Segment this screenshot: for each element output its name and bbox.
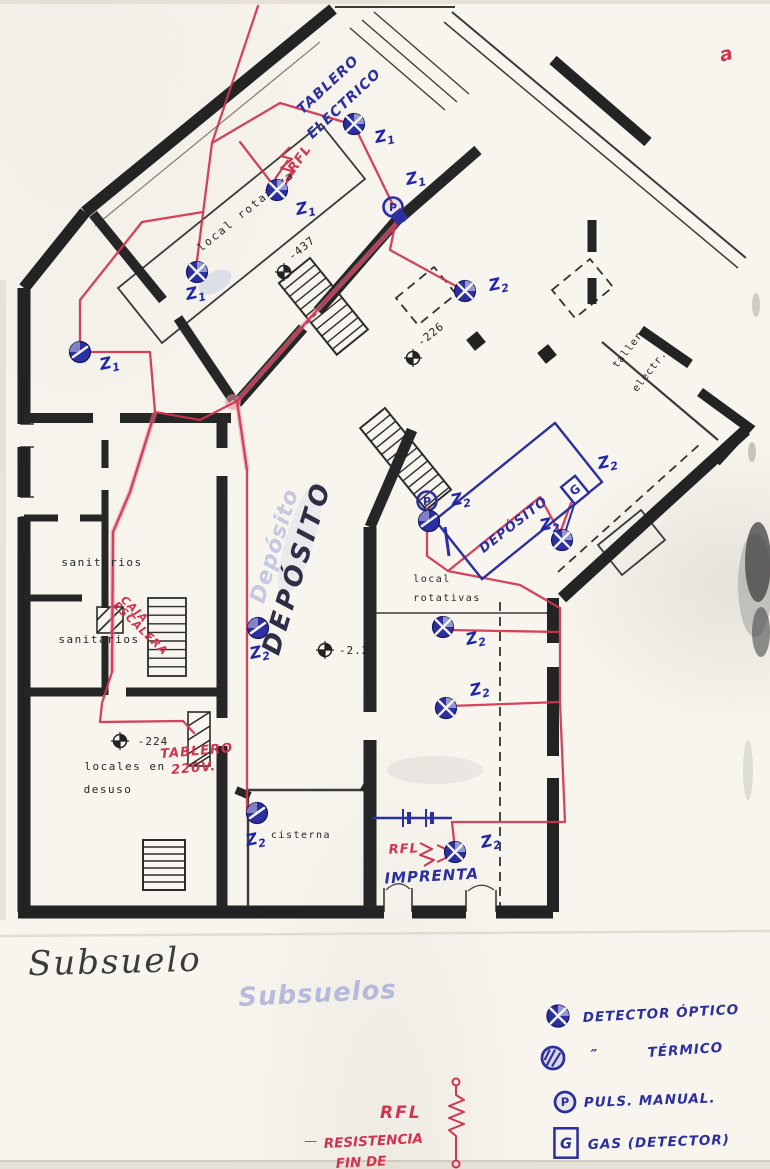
legend-detector-termico-ditto: ″: [591, 1046, 598, 1064]
zone-label: Z2: [478, 829, 503, 855]
note-subsuelos: Subsuelos: [238, 975, 398, 1013]
zone-label: Z1: [293, 196, 317, 222]
legend-rfl-label: RFL: [380, 1103, 422, 1123]
room-sanitarios-1: sanitarios: [61, 556, 142, 569]
detector-markers: Z1Z1PZ1Z1Z1Z2PZ2GZ2Z2Z2Z2Z2Z2Z2: [70, 114, 620, 863]
blue-linework: [372, 208, 602, 827]
optical-symbol: [455, 281, 476, 302]
level-221-text: -2.21: [339, 644, 377, 657]
wiring-red: [80, 6, 571, 850]
level-224: [111, 732, 129, 750]
room-local: local: [413, 574, 451, 585]
level-226: [404, 349, 422, 367]
pulsador-symbol: P: [555, 1092, 575, 1112]
legend-rfl-note1: RESISTENCIA: [323, 1131, 423, 1152]
zone-label: Z2: [595, 450, 620, 476]
note-imprenta: IMPRENTA: [384, 865, 479, 888]
thermal-symbol: [419, 511, 440, 532]
optical-symbol: [445, 842, 466, 863]
room-cisterna: cisterna: [271, 830, 331, 841]
floor-plan-canvas: local rotativatallerelectr.sanitariossan…: [0, 0, 770, 1169]
room-rotativas: rotativas: [413, 593, 481, 604]
room-sanitarios-2: sanitarios: [58, 633, 139, 646]
optical-symbol: [187, 262, 208, 283]
room-locales-en: locales en: [84, 760, 165, 773]
stair-flight: [360, 408, 451, 510]
legend-gas-detector-text: GAS (DETECTOR): [588, 1132, 731, 1153]
thermal-symbol: [247, 803, 268, 824]
note-tablero-220-2: 220V.: [171, 759, 217, 778]
level-226-text: -226: [415, 320, 447, 349]
legend-rfl-note2: FIN DE: [335, 1153, 387, 1169]
plan-title-pencil: Subsuelo: [28, 940, 203, 985]
pulsador-symbol: P: [418, 492, 437, 511]
zone-label: Z2: [486, 272, 511, 298]
stair-flight: [143, 840, 185, 890]
handwritten-red-notes: RFLCAJAESCALERATABLERO220V.RFLa: [110, 42, 736, 858]
pillars: [466, 331, 557, 364]
legend: DETECTOR ÓPTICO″TÉRMICOPPULS. MANUAL.GGA…: [304, 1000, 740, 1169]
zone-label: Z2: [467, 677, 492, 703]
svg-text:P: P: [561, 1095, 569, 1109]
zone-label: Z1: [403, 166, 427, 192]
optical-symbol: [267, 180, 288, 201]
level-221: [316, 641, 334, 659]
svg-text:P: P: [389, 201, 397, 214]
optical-symbol: [547, 1005, 569, 1027]
legend-detector-termico-text: TÉRMICO: [647, 1039, 724, 1061]
thermal-symbol: [248, 618, 269, 639]
level-437: [275, 263, 293, 281]
legend-detector-optico: DETECTOR ÓPTICO: [547, 1000, 740, 1027]
gas-box-symbol: G: [554, 1128, 577, 1157]
thermal-symbol: [70, 342, 91, 363]
gas-symbol: G: [561, 476, 589, 504]
note-rfl-bottom: RFL: [388, 841, 419, 858]
thermal-outline-symbol: [542, 1047, 564, 1069]
legend-detector-optico-text: DETECTOR ÓPTICO: [582, 1000, 739, 1026]
optical-symbol: [344, 114, 365, 135]
legend-gas-detector: GGAS (DETECTOR): [554, 1128, 730, 1157]
corner-mark: a: [717, 42, 736, 67]
legend-rfl-dash: —: [304, 1134, 317, 1149]
svg-text:G: G: [560, 1135, 572, 1152]
zone-label: Z1: [97, 351, 121, 377]
legend-pulsador-manual-text: PULS. MANUAL.: [584, 1090, 716, 1111]
optical-symbol: [436, 698, 457, 719]
svg-text:P: P: [423, 495, 431, 508]
dashed-lines: [300, 259, 700, 908]
scanned-floor-plan-page: local rotativatallerelectr.sanitariossan…: [0, 0, 770, 1169]
zone-label: Z1: [372, 124, 396, 150]
zone-label: Z2: [243, 827, 268, 853]
legend-pulsador-manual: PPULS. MANUAL.: [555, 1090, 716, 1112]
room-desuso: desuso: [84, 783, 133, 796]
optical-symbol: [433, 617, 454, 638]
legend-detector-termico: ″TÉRMICO: [542, 1039, 724, 1069]
pulsador-symbol: P: [384, 198, 403, 217]
